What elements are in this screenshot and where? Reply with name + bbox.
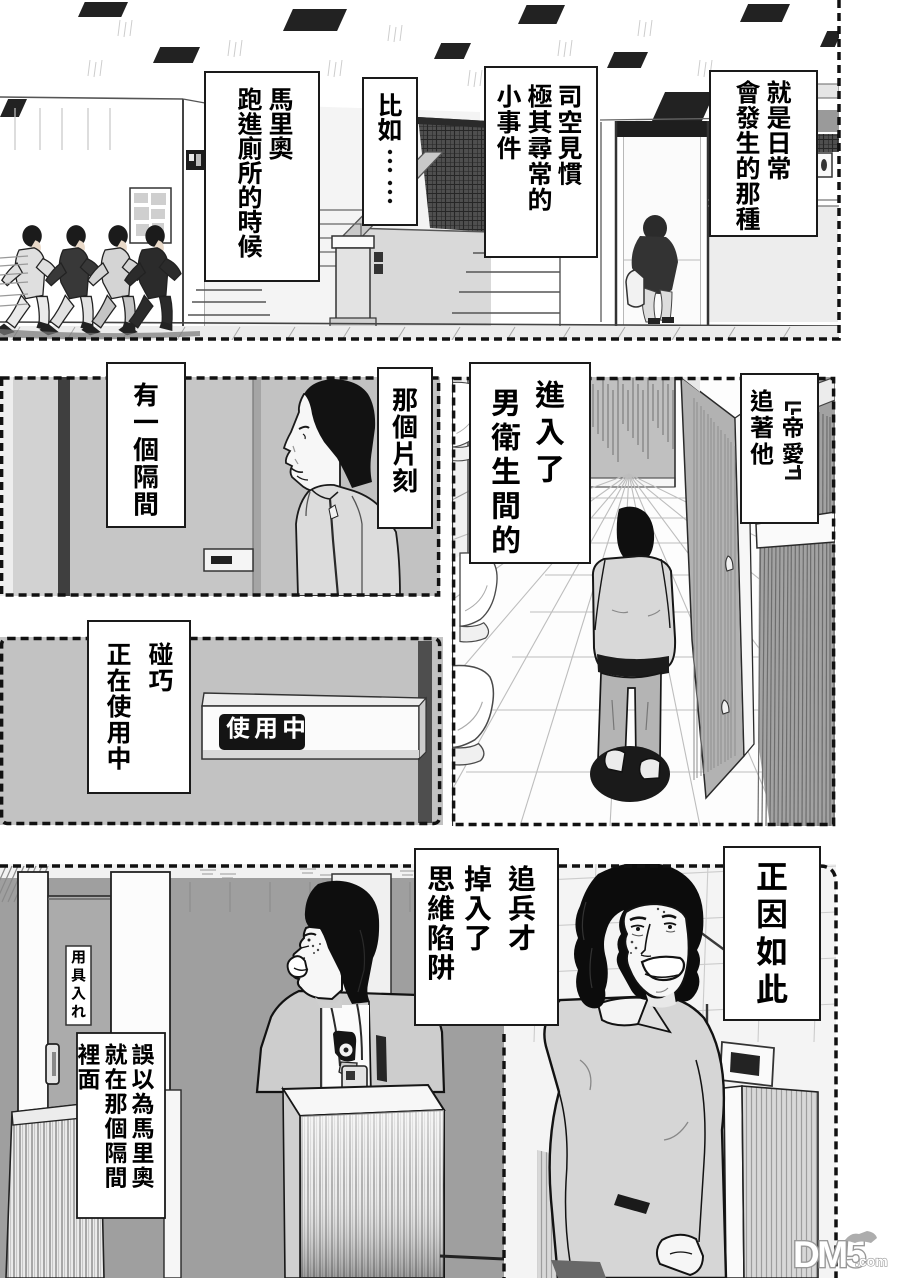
svg-text:.com: .com [855, 1253, 888, 1269]
